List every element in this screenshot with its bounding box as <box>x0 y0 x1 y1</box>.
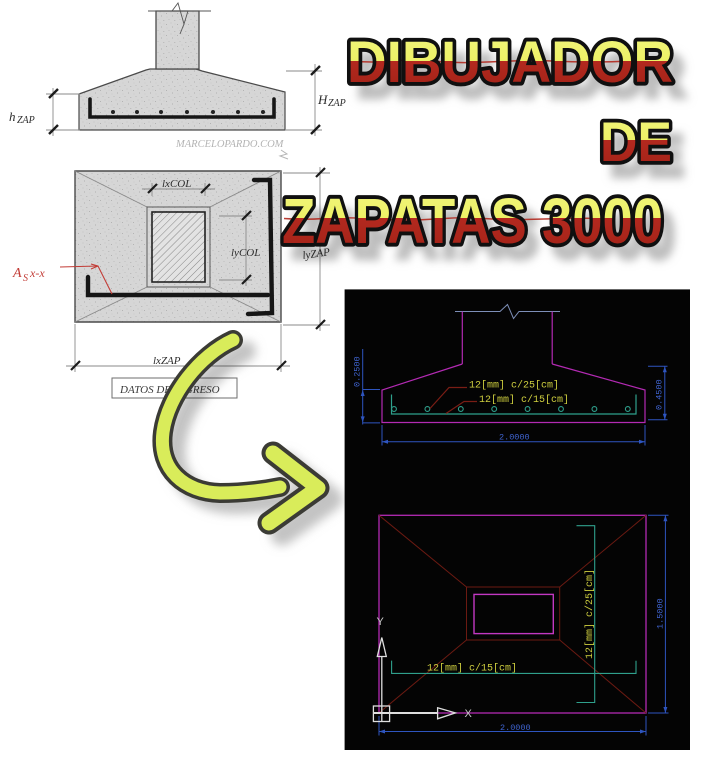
svg-text:DE: DE <box>600 110 672 173</box>
svg-text:X: X <box>465 708 473 720</box>
svg-text:12[mm] c/15[cm]: 12[mm] c/15[cm] <box>427 663 517 675</box>
svg-text:2.0000: 2.0000 <box>500 723 531 733</box>
svg-text:ZAP: ZAP <box>328 98 346 109</box>
svg-text:0.2500: 0.2500 <box>353 356 363 387</box>
svg-text:x-x: x-x <box>29 266 45 280</box>
svg-text:12[mm] c/25[cm]: 12[mm] c/25[cm] <box>584 569 596 659</box>
svg-text:0.4500: 0.4500 <box>655 379 665 410</box>
svg-text:S: S <box>23 273 28 284</box>
svg-text:lxCOL: lxCOL <box>162 178 191 190</box>
svg-text:DIBUJADOR: DIBUJADOR <box>347 30 673 95</box>
svg-text:H: H <box>317 92 328 107</box>
svg-text:MARCELOPARDO.COM: MARCELOPARDO.COM <box>175 139 285 150</box>
svg-text:h: h <box>9 109 16 124</box>
svg-text:lyCOL: lyCOL <box>231 247 260 259</box>
svg-text:ZAP: ZAP <box>17 115 35 126</box>
svg-text:Y: Y <box>377 616 385 628</box>
svg-text:1.5000: 1.5000 <box>656 598 666 629</box>
svg-text:lxZAP: lxZAP <box>153 355 181 367</box>
svg-text:12[mm] c/25[cm]: 12[mm] c/25[cm] <box>469 380 559 392</box>
svg-text:A: A <box>12 266 22 281</box>
svg-text:ZAPATAS 3000: ZAPATAS 3000 <box>282 185 663 257</box>
svg-text:2.0000: 2.0000 <box>499 433 530 443</box>
svg-text:12[mm] c/15[cm]: 12[mm] c/15[cm] <box>479 394 569 406</box>
